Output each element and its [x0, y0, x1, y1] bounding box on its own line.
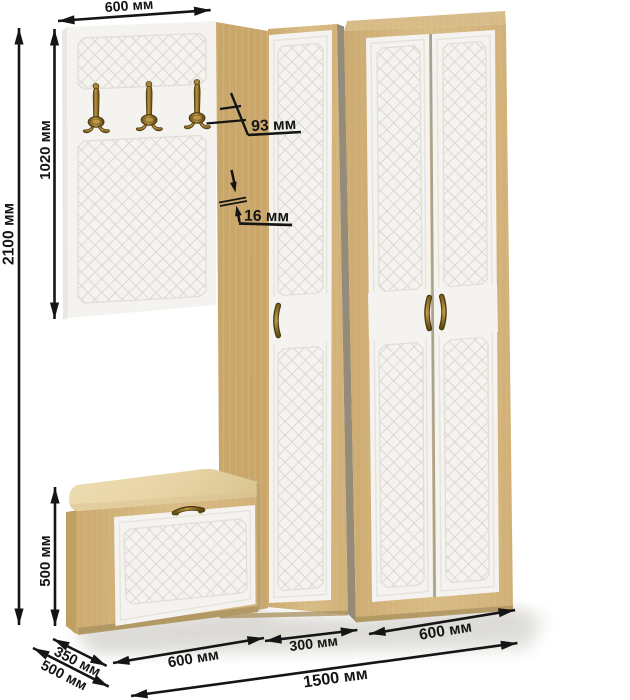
svg-text:16 мм: 16 мм	[244, 208, 289, 226]
svg-text:2100 мм: 2100 мм	[1, 203, 18, 265]
svg-text:1020 мм: 1020 мм	[37, 120, 54, 180]
svg-text:93 мм: 93 мм	[251, 116, 297, 135]
svg-text:500 мм: 500 мм	[37, 535, 54, 586]
